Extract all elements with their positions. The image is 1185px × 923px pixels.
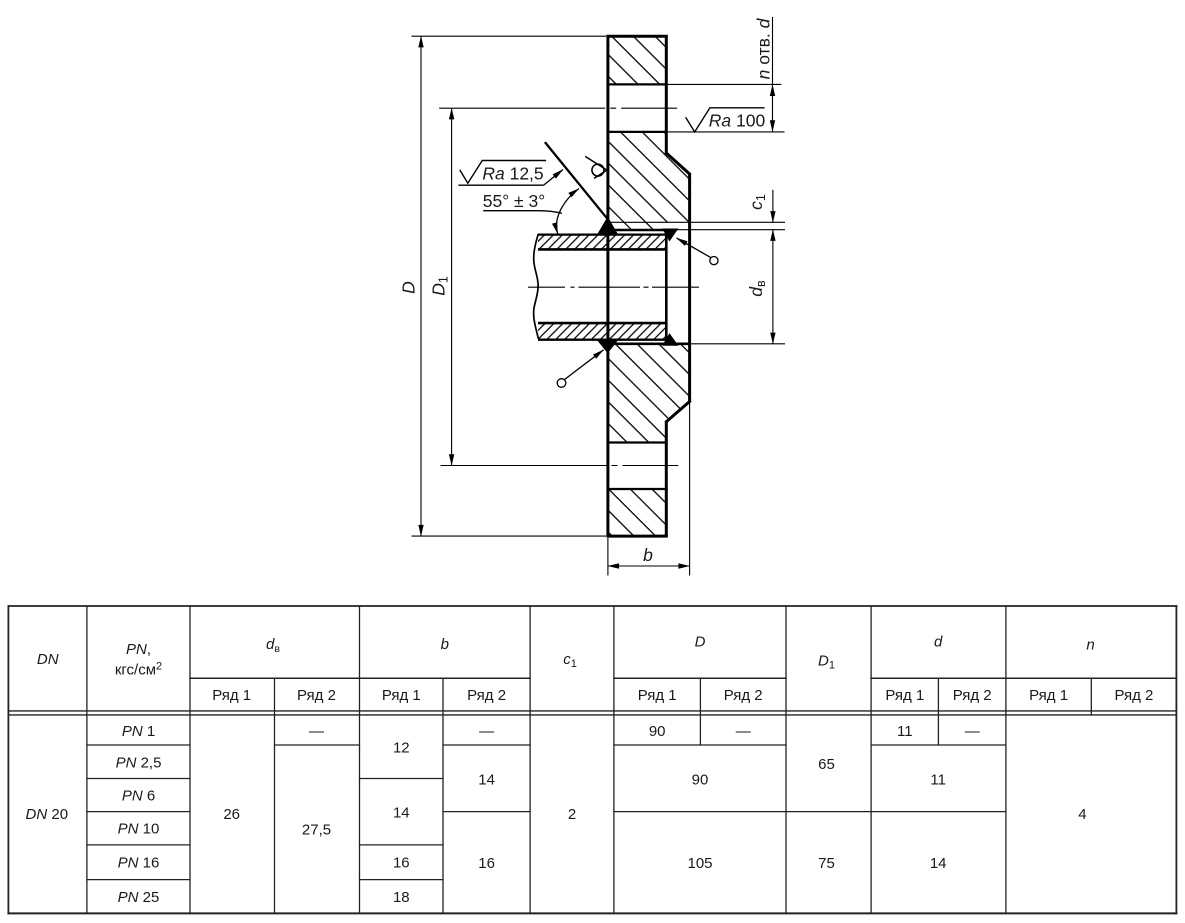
svg-text:DN: DN	[37, 651, 59, 668]
svg-text:55° ± 3°: 55° ± 3°	[483, 191, 546, 211]
svg-text:18: 18	[393, 889, 410, 906]
svg-text:—: —	[965, 723, 980, 740]
svg-text:D: D	[695, 634, 706, 651]
svg-text:PN 2,5: PN 2,5	[116, 755, 162, 772]
svg-text:Ряд 1: Ряд 1	[382, 687, 421, 704]
svg-text:90: 90	[649, 723, 666, 740]
svg-text:105: 105	[687, 855, 712, 872]
svg-text:26: 26	[223, 806, 240, 823]
svg-text:d: d	[934, 634, 943, 651]
svg-text:Ряд 1: Ряд 1	[885, 687, 924, 704]
svg-text:16: 16	[393, 855, 410, 872]
svg-text:16: 16	[478, 855, 495, 872]
svg-text:—: —	[736, 723, 751, 740]
svg-text:PN 1: PN 1	[122, 723, 155, 740]
svg-text:2: 2	[568, 806, 576, 823]
svg-text:Ряд 1: Ряд 1	[1029, 687, 1068, 704]
svg-text:14: 14	[478, 771, 495, 788]
svg-text:n отв. d: n отв. d	[753, 17, 773, 79]
svg-text:n: n	[1086, 637, 1094, 654]
svg-text:D1: D1	[428, 276, 450, 296]
svg-text:c1: c1	[746, 194, 768, 210]
svg-text:—: —	[309, 723, 324, 740]
svg-text:4: 4	[1078, 806, 1086, 823]
svg-text:dв: dв	[746, 280, 768, 297]
svg-text:27,5: 27,5	[302, 822, 331, 839]
svg-text:14: 14	[930, 855, 947, 872]
svg-text:Ряд 2: Ряд 2	[467, 687, 506, 704]
svg-text:—: —	[479, 723, 494, 740]
svg-text:Ряд 1: Ряд 1	[638, 687, 677, 704]
svg-text:b: b	[643, 545, 653, 565]
svg-text:Ra 12,5: Ra 12,5	[482, 164, 543, 184]
svg-text:DN 20: DN 20	[26, 806, 69, 823]
svg-text:Ряд 2: Ряд 2	[297, 687, 336, 704]
svg-text:PN 10: PN 10	[118, 821, 160, 838]
svg-text:кгс/см2: кгс/см2	[115, 661, 162, 679]
svg-text:Ряд 2: Ряд 2	[724, 687, 763, 704]
svg-text:PN 16: PN 16	[118, 855, 160, 872]
svg-text:PN 6: PN 6	[122, 787, 155, 804]
svg-text:PN 25: PN 25	[118, 889, 160, 906]
svg-text:Ряд 1: Ряд 1	[212, 687, 251, 704]
svg-text:12: 12	[393, 739, 410, 756]
svg-text:dв: dв	[266, 636, 280, 655]
svg-text:PN,: PN,	[126, 641, 151, 658]
svg-text:c1: c1	[563, 651, 577, 670]
svg-text:D1: D1	[818, 653, 835, 672]
svg-text:Ra 100: Ra 100	[709, 111, 766, 131]
svg-text:Ряд 2: Ряд 2	[1114, 687, 1153, 704]
svg-text:11: 11	[930, 771, 946, 788]
svg-text:Ряд 2: Ряд 2	[953, 687, 992, 704]
svg-text:90: 90	[692, 771, 709, 788]
svg-text:b: b	[441, 636, 449, 653]
svg-text:11: 11	[897, 723, 913, 740]
svg-text:D: D	[399, 281, 419, 294]
svg-text:14: 14	[393, 804, 410, 821]
svg-text:65: 65	[818, 756, 835, 773]
svg-text:75: 75	[818, 855, 835, 872]
